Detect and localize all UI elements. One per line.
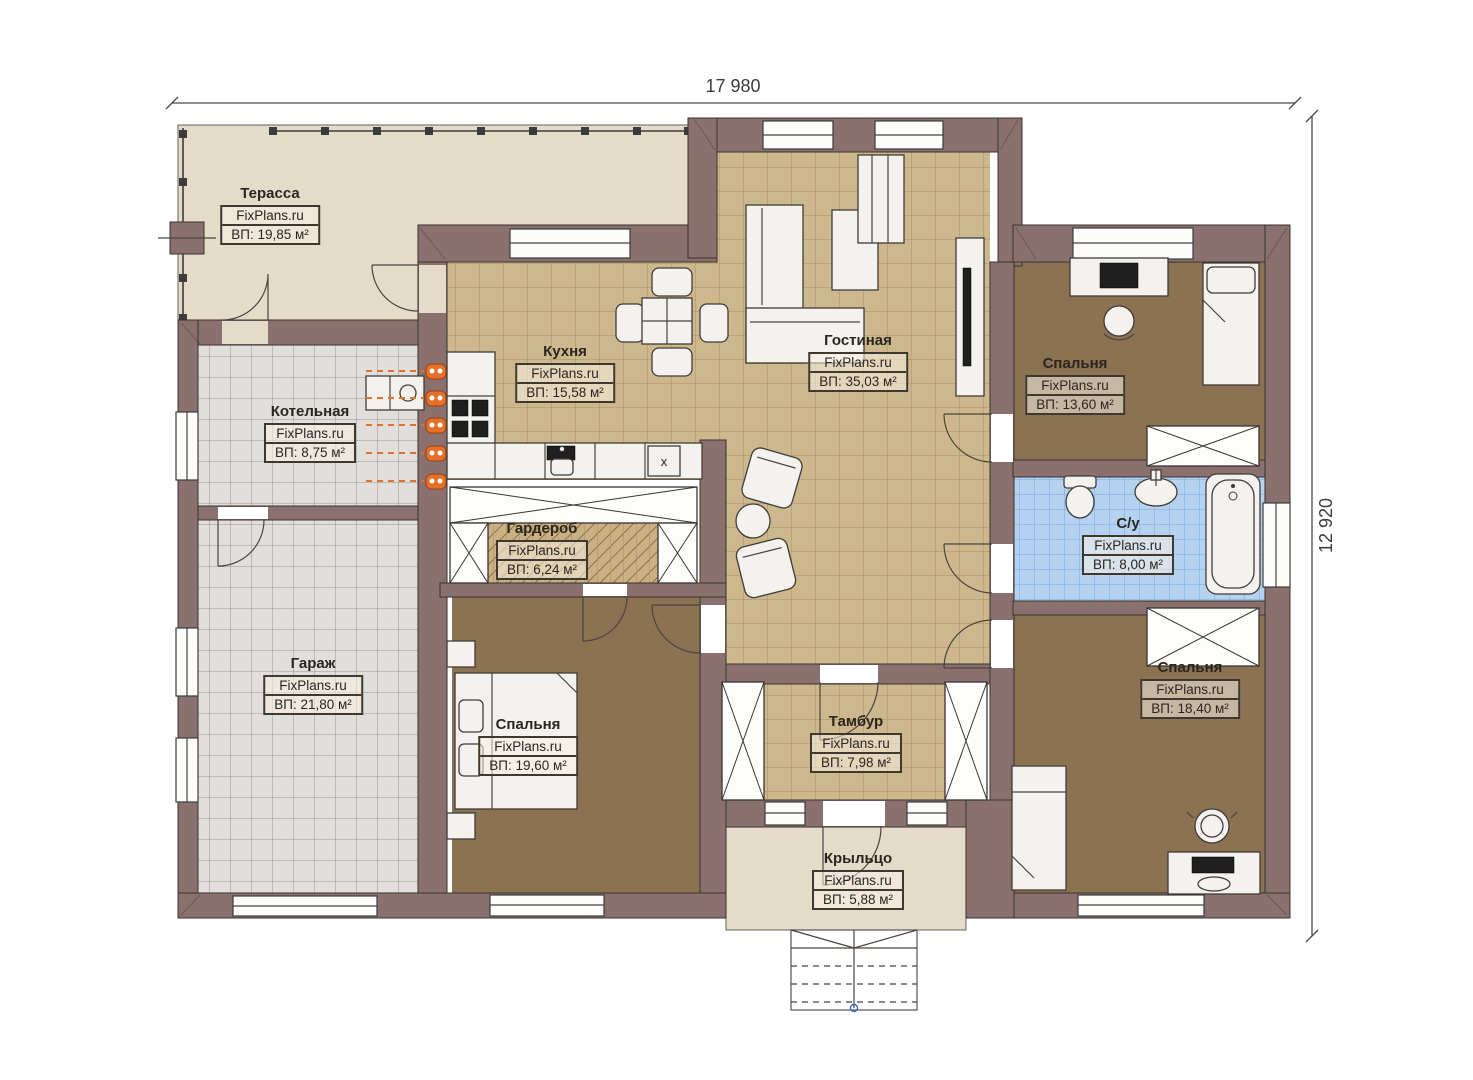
- window-garage-1: [176, 628, 198, 696]
- room-area: ВП: 15,58 м²: [517, 382, 613, 401]
- window-living-1: [763, 121, 833, 149]
- room-label-wardrobe: Гардероб FixPlans.ru ВП: 6,24 м²: [496, 521, 588, 580]
- brand-watermark: FixPlans.ru: [812, 735, 900, 752]
- wall-left-outer: [178, 320, 198, 918]
- tv-screen: [963, 268, 971, 366]
- wardrobe-bottom-right: [1147, 608, 1259, 666]
- garage-door: [233, 896, 377, 916]
- room-label-bathroom: С/у FixPlans.ru ВП: 8,00 м²: [1082, 516, 1174, 575]
- wall-terrace-bottom: [178, 320, 447, 345]
- wall-porch-right: [966, 800, 1014, 918]
- room-name: Спальня: [1140, 660, 1240, 677]
- room-area: ВП: 19,85 м²: [222, 224, 318, 243]
- dimension-line-top: [166, 97, 1301, 109]
- floor-plan-canvas: x: [0, 0, 1473, 1080]
- vestibule-closet-right: [945, 682, 987, 800]
- porch-stairs: [791, 930, 917, 1012]
- wall-living-left: [688, 118, 717, 258]
- room-label-vestibule: Тамбур FixPlans.ru ВП: 7,98 м²: [810, 714, 902, 773]
- room-name: Гардероб: [496, 521, 588, 538]
- brand-watermark: FixPlans.ru: [1027, 377, 1123, 394]
- window-vestibule-right: [907, 802, 947, 825]
- floor-plan-drawing: x: [0, 0, 1473, 1080]
- room-area: ВП: 6,24 м²: [498, 559, 586, 578]
- room-area: ВП: 8,75 м²: [266, 442, 354, 461]
- brand-watermark: FixPlans.ru: [810, 354, 906, 371]
- brand-watermark: FixPlans.ru: [480, 738, 576, 755]
- nightstand: [447, 813, 475, 839]
- dimension-width-label: 17 980: [663, 76, 803, 97]
- window-vestibule-left: [765, 802, 805, 825]
- kitchen-counter-bottom: x: [447, 443, 702, 479]
- window-bedroom-left: [490, 895, 604, 916]
- brand-watermark: FixPlans.ru: [1084, 537, 1172, 554]
- room-area: ВП: 35,03 м²: [810, 371, 906, 390]
- window-bedroom-bottom-right: [1078, 895, 1204, 916]
- window-boiler: [176, 412, 198, 480]
- laptop: [1100, 263, 1138, 288]
- window-garage-2: [176, 738, 198, 802]
- room-label-porch: Крыльцо FixPlans.ru ВП: 5,88 м²: [812, 851, 904, 910]
- window-living-2: [875, 121, 943, 149]
- wall-bedroom-left-right: [700, 440, 726, 918]
- room-area: ВП: 5,88 м²: [814, 889, 902, 908]
- pillow: [1207, 267, 1255, 293]
- brand-watermark: FixPlans.ru: [1142, 681, 1238, 698]
- room-name: Гостиная: [808, 333, 908, 350]
- room-name: Гараж: [263, 656, 363, 673]
- room-name: Кухня: [515, 344, 615, 361]
- desk-top-right: [1070, 258, 1168, 296]
- brand-watermark: FixPlans.ru: [265, 677, 361, 694]
- room-name: Терасса: [220, 186, 320, 203]
- room-label-kitchen: Кухня FixPlans.ru ВП: 15,58 м²: [515, 344, 615, 403]
- room-label-living-room: Гостиная FixPlans.ru ВП: 35,03 м²: [808, 333, 908, 392]
- window-bedroom-top-right: [1073, 228, 1193, 259]
- brand-watermark: FixPlans.ru: [222, 207, 318, 224]
- brand-watermark: FixPlans.ru: [266, 425, 354, 442]
- tv-unit: [956, 238, 984, 396]
- desk-bottom-right: [1168, 852, 1260, 894]
- side-table: [736, 504, 770, 538]
- brand-watermark: FixPlans.ru: [517, 365, 613, 382]
- window-kitchen: [510, 229, 630, 258]
- bathtub: [1206, 474, 1260, 594]
- computer-monitor: [1192, 857, 1234, 873]
- boiler-unit: [366, 376, 424, 410]
- window-bathroom: [1263, 503, 1290, 587]
- room-label-bedroom-bottom-right: Спальня FixPlans.ru ВП: 18,40 м²: [1140, 660, 1240, 719]
- room-label-bedroom-top-right: Спальня FixPlans.ru ВП: 13,60 м²: [1025, 356, 1125, 415]
- room-area: ВП: 19,60 м²: [480, 755, 576, 774]
- dimension-height-label: 12 920: [1316, 450, 1340, 600]
- room-area: ВП: 7,98 м²: [812, 752, 900, 771]
- shelf-unit: [858, 155, 904, 243]
- room-name: Крыльцо: [812, 851, 904, 868]
- toilet: [1064, 476, 1096, 518]
- room-label-terrace: Терасса FixPlans.ru ВП: 19,85 м²: [220, 186, 320, 245]
- room-name: С/у: [1082, 516, 1174, 533]
- dishwasher-mark: x: [661, 454, 668, 469]
- vestibule-closet-left: [722, 682, 764, 800]
- room-area: ВП: 13,60 м²: [1027, 394, 1123, 413]
- single-bed-bottom-right: [1012, 766, 1066, 890]
- room-name: Котельная: [264, 404, 356, 421]
- brand-watermark: FixPlans.ru: [498, 542, 586, 559]
- room-name: Тамбур: [810, 714, 902, 731]
- room-label-garage: Гараж FixPlans.ru ВП: 21,80 м²: [263, 656, 363, 715]
- room-area: ВП: 21,80 м²: [265, 694, 361, 713]
- closet-right: [658, 523, 697, 583]
- room-name: Спальня: [1025, 356, 1125, 373]
- wardrobe-cabinet-wide: [450, 487, 697, 523]
- wall-living-top: [688, 118, 1022, 152]
- room-name: Спальня: [478, 717, 578, 734]
- brand-watermark: FixPlans.ru: [814, 872, 902, 889]
- wardrobe-top-right: [1147, 426, 1259, 466]
- room-area: ВП: 8,00 м²: [1084, 554, 1172, 573]
- room-area: ВП: 18,40 м²: [1142, 698, 1238, 717]
- room-label-boiler-room: Котельная FixPlans.ru ВП: 8,75 м²: [264, 404, 356, 463]
- dishwasher-cabinet: x: [648, 446, 680, 476]
- nightstand: [447, 641, 475, 667]
- closet-left: [450, 523, 488, 583]
- room-label-bedroom-left: Спальня FixPlans.ru ВП: 19,60 м²: [478, 717, 578, 776]
- single-bed-top-right: [1203, 263, 1259, 385]
- kitchen-counter-left: [447, 352, 495, 444]
- kitchen-sink: [551, 459, 573, 475]
